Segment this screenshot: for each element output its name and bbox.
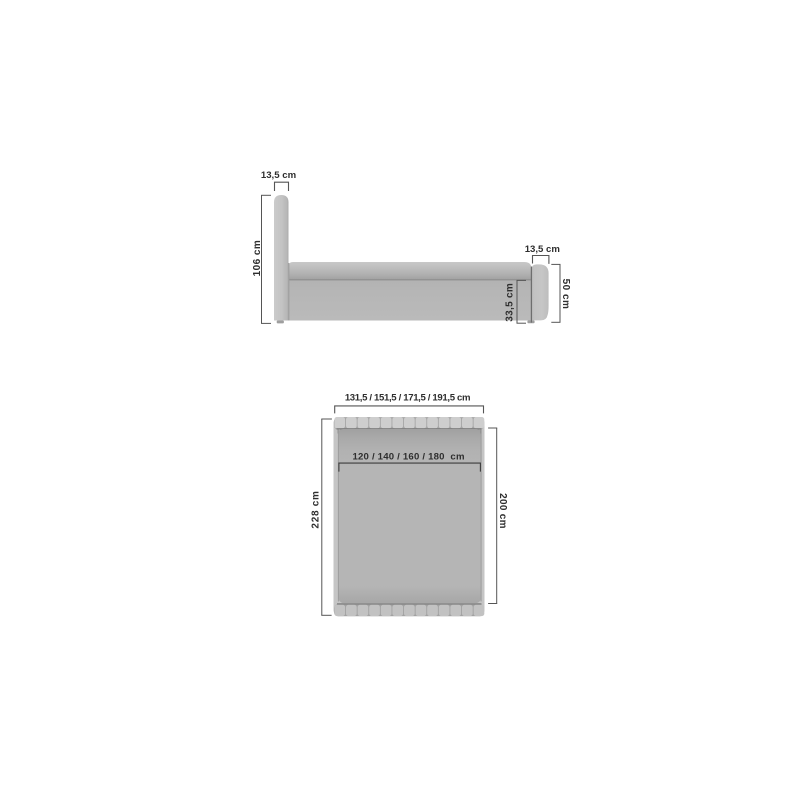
svg-text:13,5 cm: 13,5 cm xyxy=(525,244,560,255)
svg-text:13,5 cm: 13,5 cm xyxy=(261,170,296,181)
svg-text:228 cm: 228 cm xyxy=(311,490,322,528)
svg-text:106 cm: 106 cm xyxy=(252,240,263,277)
svg-text:33,5 cm: 33,5 cm xyxy=(505,283,516,322)
svg-text:200 cm: 200 cm xyxy=(497,493,508,529)
svg-text:131,5 / 151,5 / 171,5 / 191,5: 131,5 / 151,5 / 171,5 / 191,5 cm xyxy=(345,393,470,404)
svg-text:50 cm: 50 cm xyxy=(560,279,571,310)
svg-text:120 / 140 / 160 / 180 cm: 120 / 140 / 160 / 180 cm xyxy=(352,452,464,463)
